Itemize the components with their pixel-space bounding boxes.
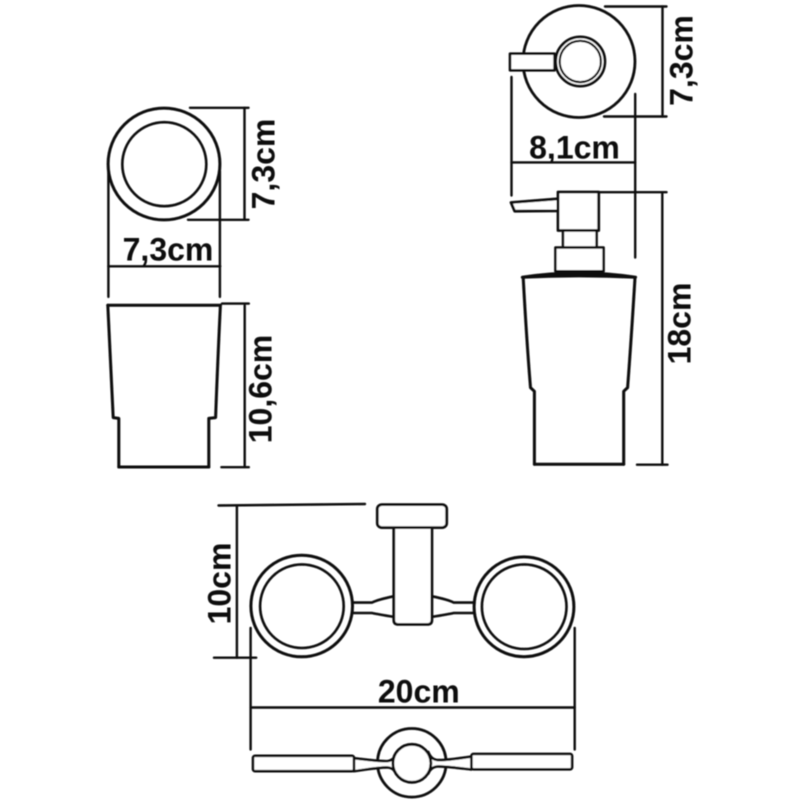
svg-text:8,1cm: 8,1cm bbox=[529, 130, 620, 166]
svg-text:10,6cm: 10,6cm bbox=[243, 335, 279, 444]
svg-text:18cm: 18cm bbox=[662, 283, 698, 365]
svg-text:7,3cm: 7,3cm bbox=[246, 119, 282, 210]
svg-text:20cm: 20cm bbox=[378, 674, 460, 710]
svg-text:7,3cm: 7,3cm bbox=[123, 232, 214, 268]
svg-text:7,3cm: 7,3cm bbox=[664, 15, 700, 106]
svg-text:10cm: 10cm bbox=[202, 543, 238, 625]
